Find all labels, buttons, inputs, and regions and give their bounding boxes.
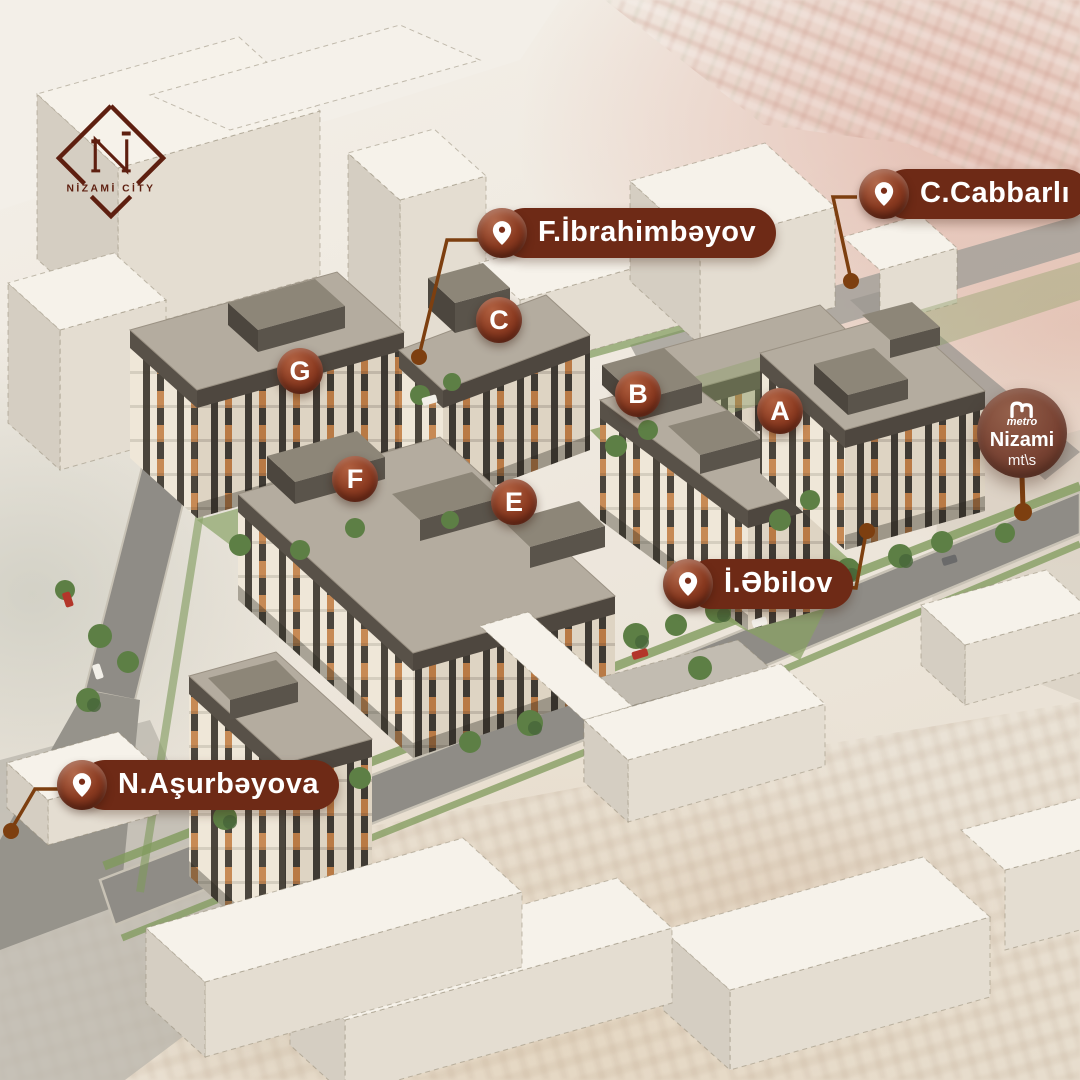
map-pin-icon xyxy=(859,169,909,219)
logo-text: NİZAMİ CİTY xyxy=(67,182,156,195)
building-marker-f[interactable]: F xyxy=(332,456,378,502)
building-marker-b[interactable]: B xyxy=(615,371,661,417)
map-pin-icon xyxy=(663,559,713,609)
street-label-f-ibrahimbeyov[interactable]: F.İbrahimbəyov xyxy=(477,208,776,258)
brand-logo: NİZAMİ CİTY xyxy=(52,97,170,229)
map-pin-icon xyxy=(57,760,107,810)
logo-monogram xyxy=(91,134,130,171)
site-map-canvas: NİZAMİ CİTY F.İbrahimbəyov C.Cabbarlı İ.… xyxy=(0,0,1080,1080)
street-name: F.İbrahimbəyov xyxy=(500,208,776,258)
building-marker-a[interactable]: A xyxy=(757,388,803,434)
street-label-n-asurbeyova[interactable]: N.Aşurbəyova xyxy=(57,760,339,810)
building-marker-e[interactable]: E xyxy=(491,479,537,525)
street-name: C.Cabbarlı xyxy=(882,169,1080,219)
metro-type-suffix: mt\s xyxy=(1008,453,1036,468)
street-label-i-ebilov[interactable]: İ.Əbilov xyxy=(663,559,853,609)
metro-station-name: Nizami xyxy=(990,428,1054,453)
street-label-c-cabbarli[interactable]: C.Cabbarlı xyxy=(859,169,1080,219)
building-marker-g[interactable]: G xyxy=(277,348,323,394)
metro-brand-label: metro xyxy=(1007,417,1038,428)
building-marker-c[interactable]: C xyxy=(476,297,522,343)
metro-station-badge[interactable]: metro Nizami mt\s xyxy=(977,388,1067,478)
map-pin-icon xyxy=(477,208,527,258)
street-name: N.Aşurbəyova xyxy=(80,760,339,810)
